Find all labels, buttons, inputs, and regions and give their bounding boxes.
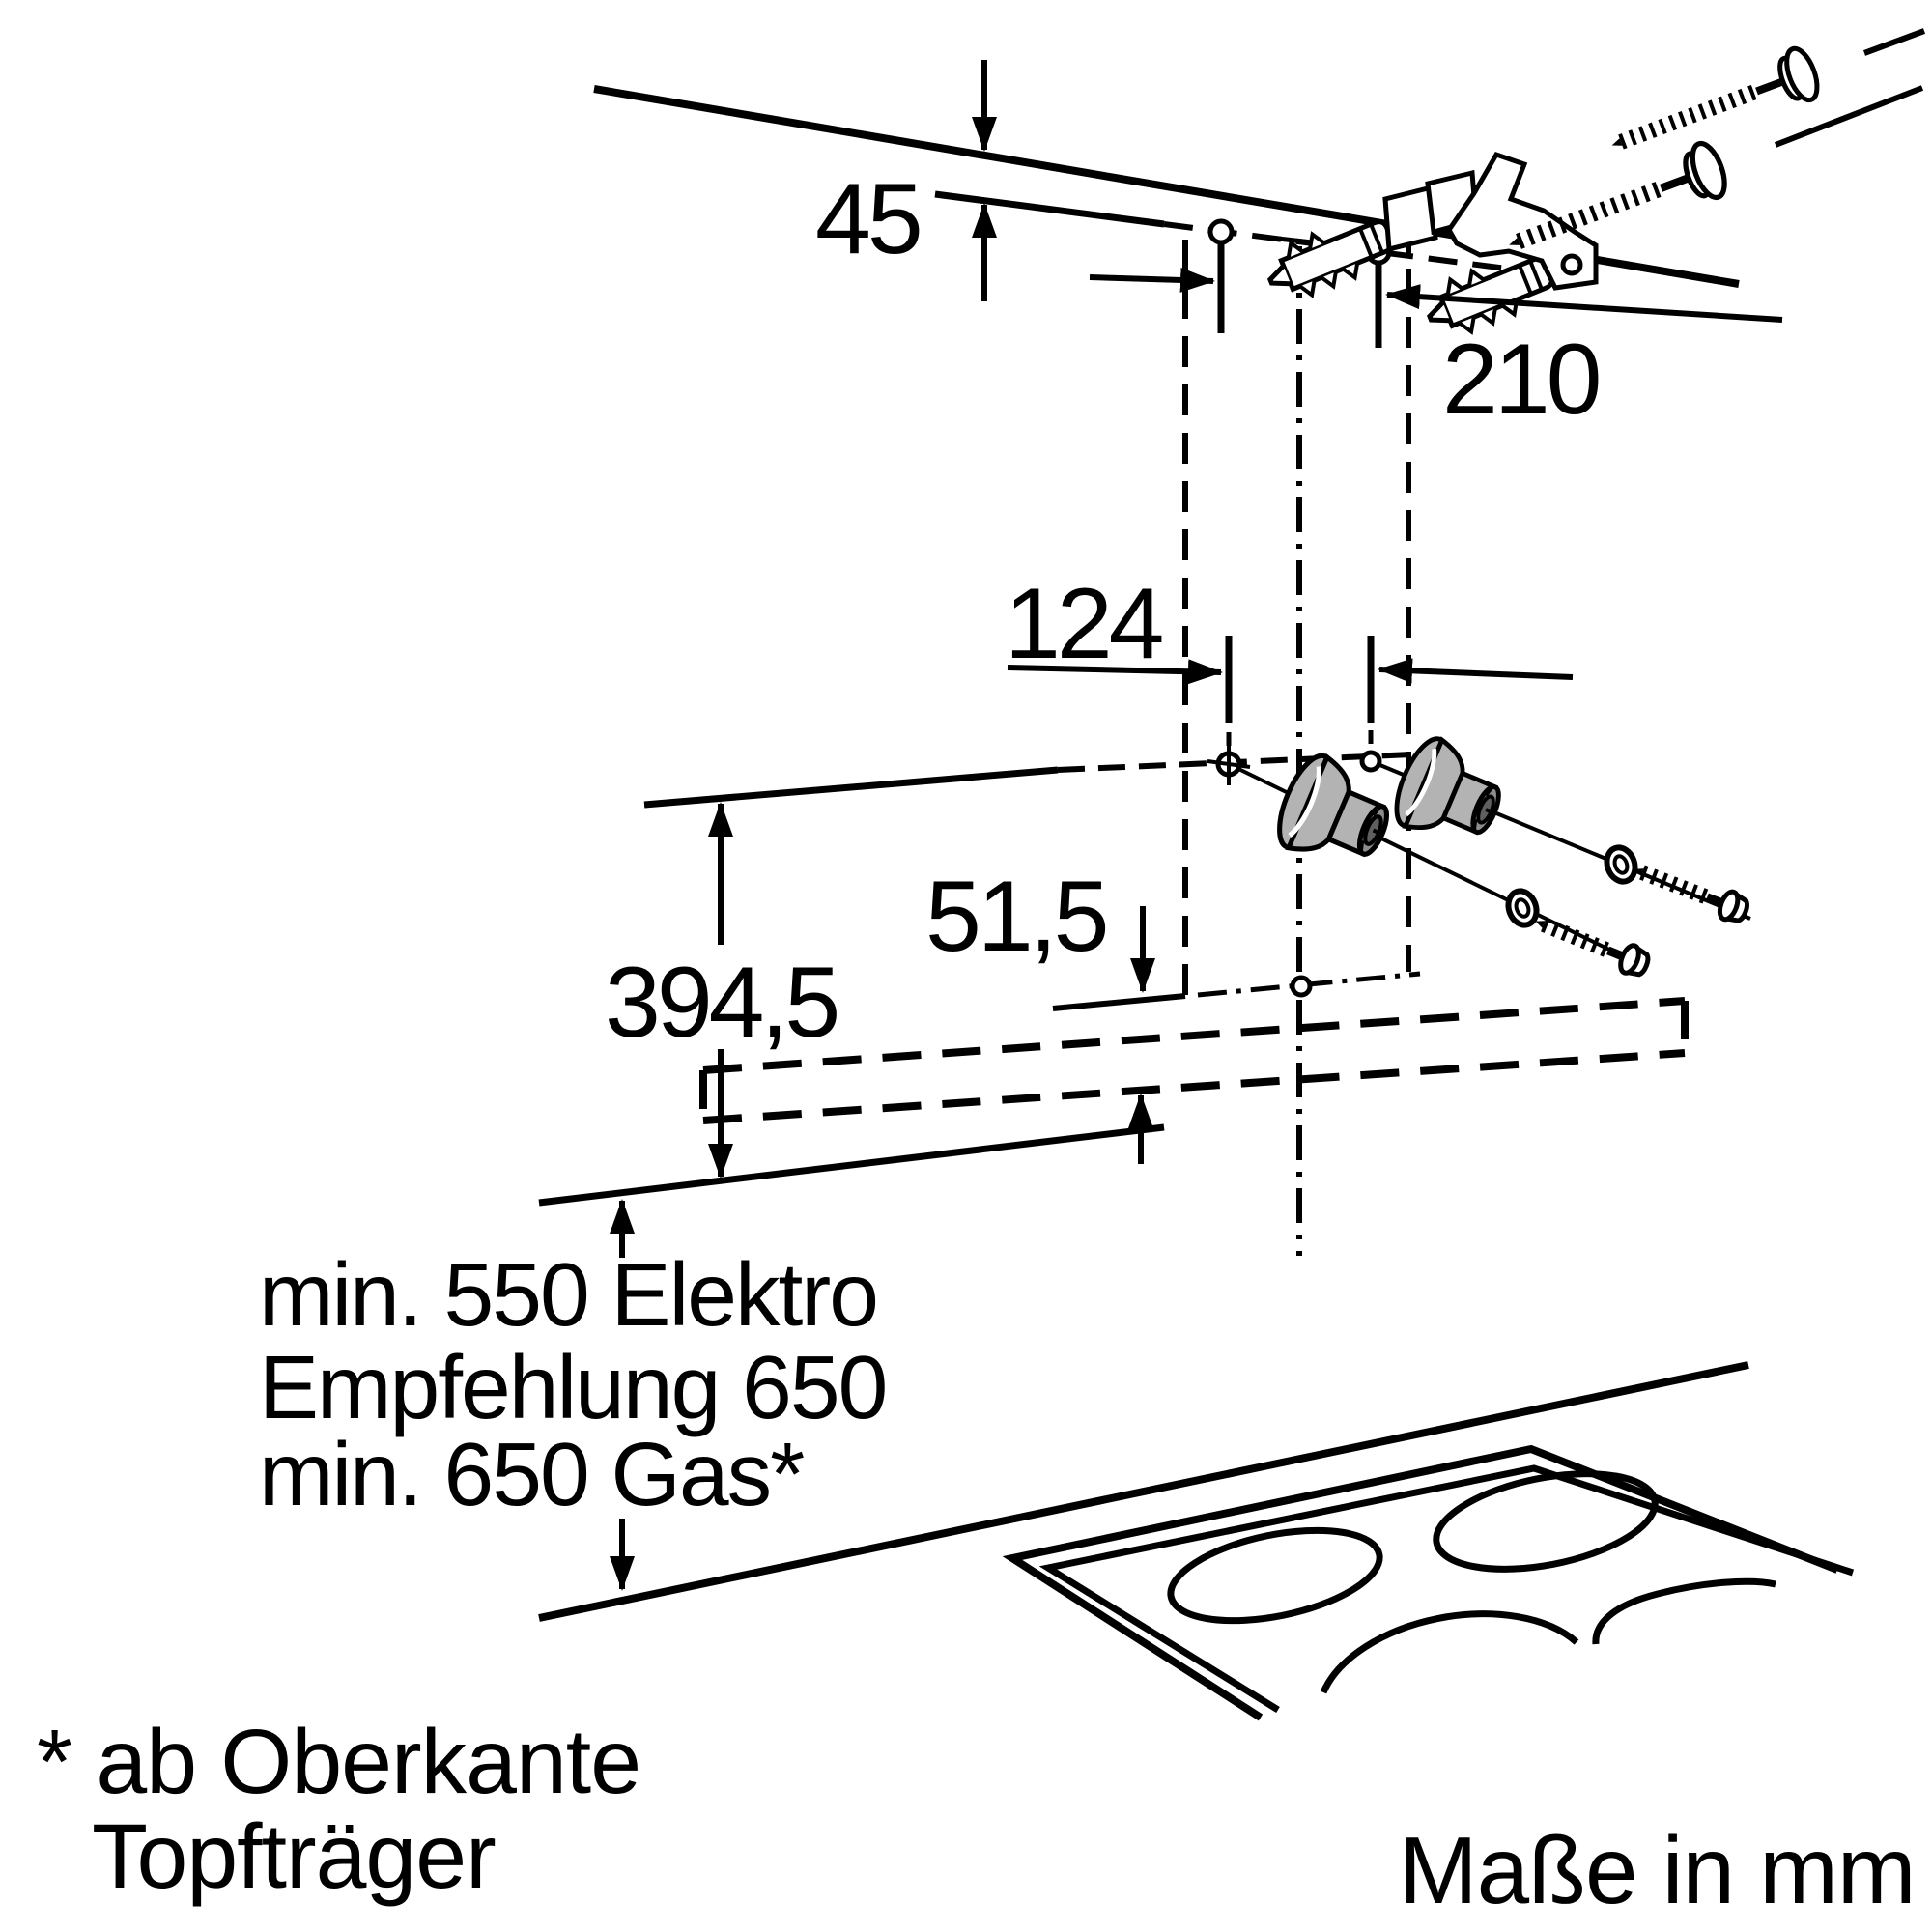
dimension-210-label: 210 — [1442, 324, 1599, 436]
hood-top-reference-line — [1053, 996, 1185, 1009]
clearance-text-line2: Empfehlung 650 — [259, 1337, 886, 1437]
burner-back-right — [1429, 1458, 1663, 1585]
fixing-screw-lower — [1530, 908, 1652, 980]
dimension-124: 124 — [1005, 568, 1573, 746]
center-fixing-hole — [1293, 978, 1310, 995]
fixing-screw-upper — [1629, 856, 1750, 925]
spacer-cone-right — [1386, 732, 1513, 857]
installation-diagram: 45 210 124 394 — [0, 0, 1932, 1932]
washer-lower — [1504, 887, 1542, 928]
screw-axis-stub-upper — [1864, 31, 1924, 53]
footnote-line2: Topfträger — [92, 1805, 496, 1908]
bracket-reference-line — [935, 194, 1164, 224]
drill-hole-left — [1210, 221, 1232, 242]
units-note: Maße in mm — [1399, 1817, 1916, 1923]
footnote-line1: * ab Oberkante — [37, 1711, 640, 1813]
burner-front-left-arc — [1323, 1614, 1577, 1692]
dimension-45: 45 — [815, 60, 984, 301]
hood-body-outline-dashed — [703, 1001, 1685, 1121]
spacer-cone-left — [1268, 749, 1402, 879]
clearance-text-line1: min. 550 Elektro — [259, 1244, 877, 1345]
bracket-screw-hole — [1563, 256, 1580, 273]
burner-back-left — [1163, 1515, 1387, 1636]
dimension-124-label: 124 — [1005, 568, 1162, 680]
dimension-394-5-label: 394,5 — [605, 947, 837, 1059]
clearance-text-line3: min. 650 Gas* — [259, 1424, 804, 1524]
burner-front-right-arc — [1596, 1581, 1776, 1644]
mounting-bracket-assembly — [1261, 31, 1924, 344]
washer-upper — [1603, 843, 1640, 885]
dimension-210: 210 — [1090, 277, 1782, 436]
dimension-45-label: 45 — [815, 163, 920, 275]
dimension-51-5-label: 51,5 — [925, 861, 1106, 973]
clearance-dimension: min. 550 Elektro Empfehlung 650 min. 650… — [259, 1201, 886, 1589]
construction-lines — [1185, 218, 1408, 1256]
hood-bottom-reference-line — [539, 1127, 1164, 1203]
dimension-394-5: 394,5 — [605, 804, 837, 1177]
lower-fixing-assembly — [1207, 732, 1750, 980]
lower-hole-right — [1362, 753, 1379, 770]
dimension-51-5: 51,5 — [925, 861, 1420, 1164]
footnote: * ab Oberkante Topfträger — [37, 1711, 640, 1908]
